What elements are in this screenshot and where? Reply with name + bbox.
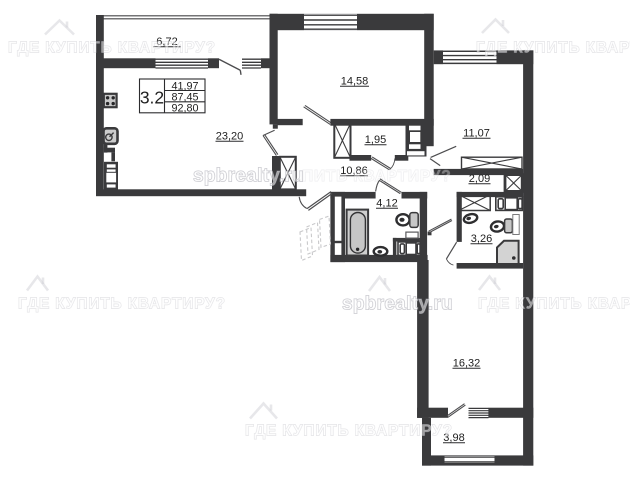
svg-text:11,07: 11,07 <box>463 128 490 140</box>
svg-text:2,09: 2,09 <box>469 173 490 185</box>
svg-text:14,58: 14,58 <box>341 76 369 88</box>
svg-text:3,26: 3,26 <box>471 233 492 245</box>
svg-text:spbrealty.ru: spbrealty.ru <box>193 166 304 187</box>
svg-text:4,12: 4,12 <box>376 198 397 210</box>
svg-text:spbrealty.ru: spbrealty.ru <box>342 294 453 315</box>
svg-text:ГДЕ КУПИТЬ КВАРТИРУ?: ГДЕ КУПИТЬ КВАРТИРУ? <box>18 296 226 313</box>
svg-text:ПИТЬ КВАРТИРУ?: ПИТЬ КВАРТИРУ? <box>302 168 451 185</box>
svg-text:ГДЕ КУПИТЬ КВАРТИРУ?: ГДЕ КУПИТЬ КВАРТИРУ? <box>245 423 453 440</box>
svg-text:ГДЕ КУПИТЬ КВАРТИРУ?: ГДЕ КУПИТЬ КВАРТИРУ? <box>478 296 630 313</box>
svg-text:41,97: 41,97 <box>171 80 198 92</box>
svg-text:23,20: 23,20 <box>216 131 244 143</box>
svg-text:92,80: 92,80 <box>171 103 198 115</box>
svg-text:ГДЕ КУПИТЬ КВАРТИРУ?: ГДЕ КУПИТЬ КВАРТИРУ? <box>476 40 630 57</box>
svg-text:1,95: 1,95 <box>365 134 386 146</box>
svg-text:3.2: 3.2 <box>140 88 164 108</box>
svg-text:16,32: 16,32 <box>453 358 481 370</box>
svg-text:ГДЕ КУПИТЬ КВАРТИРУ?: ГДЕ КУПИТЬ КВАРТИРУ? <box>8 40 216 57</box>
